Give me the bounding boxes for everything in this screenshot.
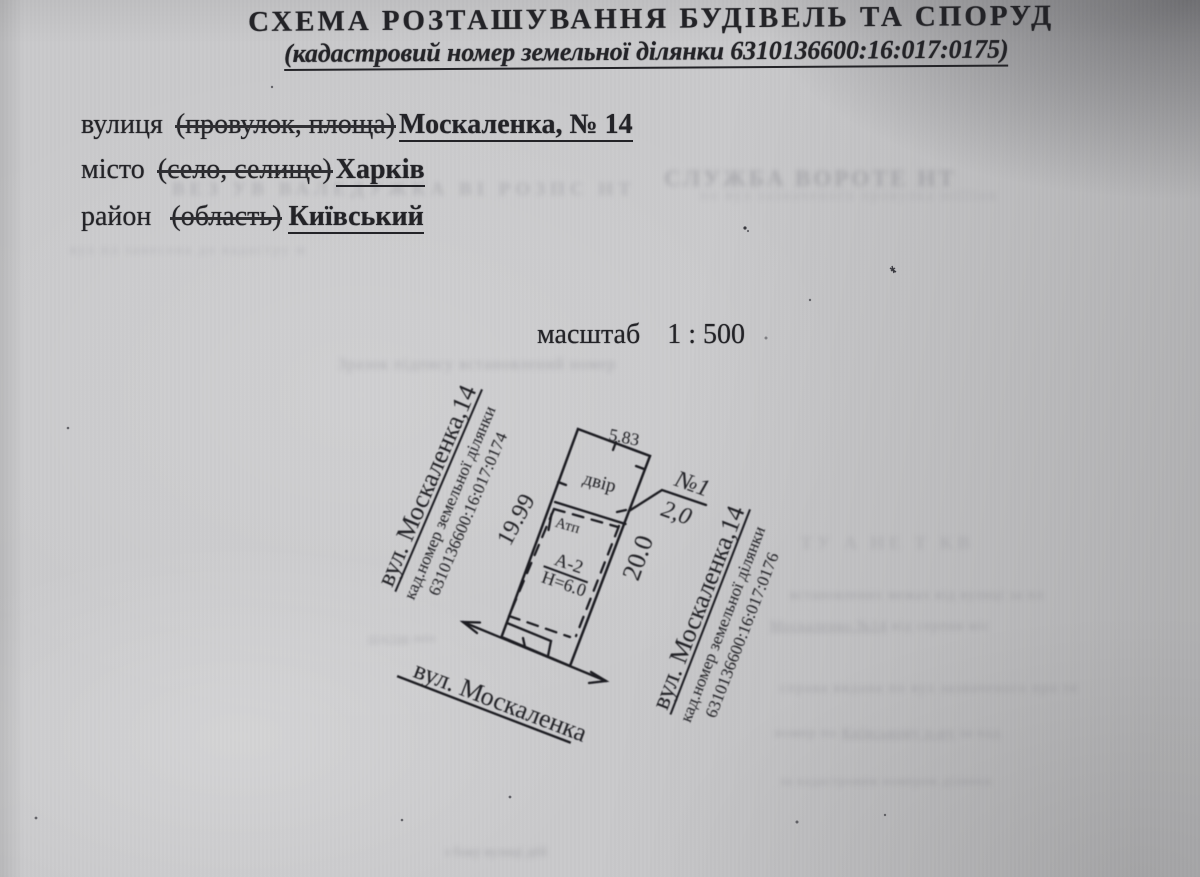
svg-text:5.83: 5.83 bbox=[607, 424, 641, 450]
svg-text:2,0: 2,0 bbox=[658, 496, 695, 531]
svg-text:двір: двір bbox=[581, 468, 619, 497]
svg-text:Атп: Атп bbox=[553, 515, 581, 537]
svg-text:19.99: 19.99 bbox=[492, 490, 540, 550]
svg-text:№1: №1 bbox=[671, 466, 713, 502]
svg-text:20.0: 20.0 bbox=[616, 531, 659, 584]
svg-text:вул. Москаленка: вул. Москаленка bbox=[410, 655, 592, 748]
